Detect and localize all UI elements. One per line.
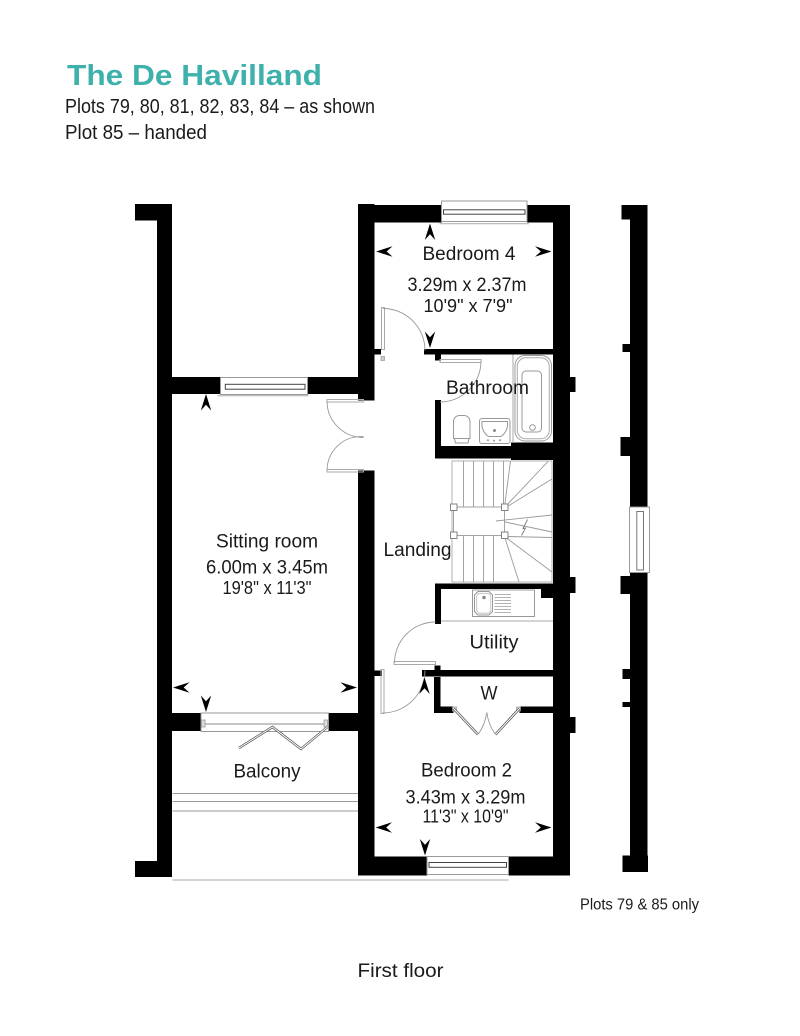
svg-text:Landing: Landing — [384, 540, 452, 561]
svg-text:Bedroom 2: Bedroom 2 — [421, 761, 512, 782]
svg-text:Balcony: Balcony — [234, 762, 301, 783]
svg-text:Plots 79 & 85 only: Plots 79 & 85 only — [580, 897, 699, 914]
svg-text:Bedroom 4: Bedroom 4 — [423, 244, 516, 265]
svg-text:Sitting room: Sitting room — [216, 532, 318, 553]
svg-text:19'8" x 11'3": 19'8" x 11'3" — [223, 577, 312, 598]
svg-text:W: W — [481, 683, 499, 705]
svg-text:First floor: First floor — [358, 960, 445, 982]
svg-text:10'9" x 7'9": 10'9" x 7'9" — [424, 295, 513, 316]
svg-text:The De Havilland: The De Havilland — [67, 60, 322, 92]
svg-text:Bathroom: Bathroom — [446, 378, 529, 399]
svg-text:3.29m x 2.37m: 3.29m x 2.37m — [408, 275, 527, 296]
svg-text:11'3" x 10'9": 11'3" x 10'9" — [423, 806, 509, 827]
svg-text:Utility: Utility — [470, 633, 520, 654]
svg-text:Plots 79, 80, 81, 82, 83, 84 –: Plots 79, 80, 81, 82, 83, 84 – as shown — [65, 95, 375, 118]
svg-text:6.00m x 3.45m: 6.00m x 3.45m — [206, 558, 328, 579]
svg-text:Plot 85 – handed: Plot 85 – handed — [65, 121, 207, 144]
